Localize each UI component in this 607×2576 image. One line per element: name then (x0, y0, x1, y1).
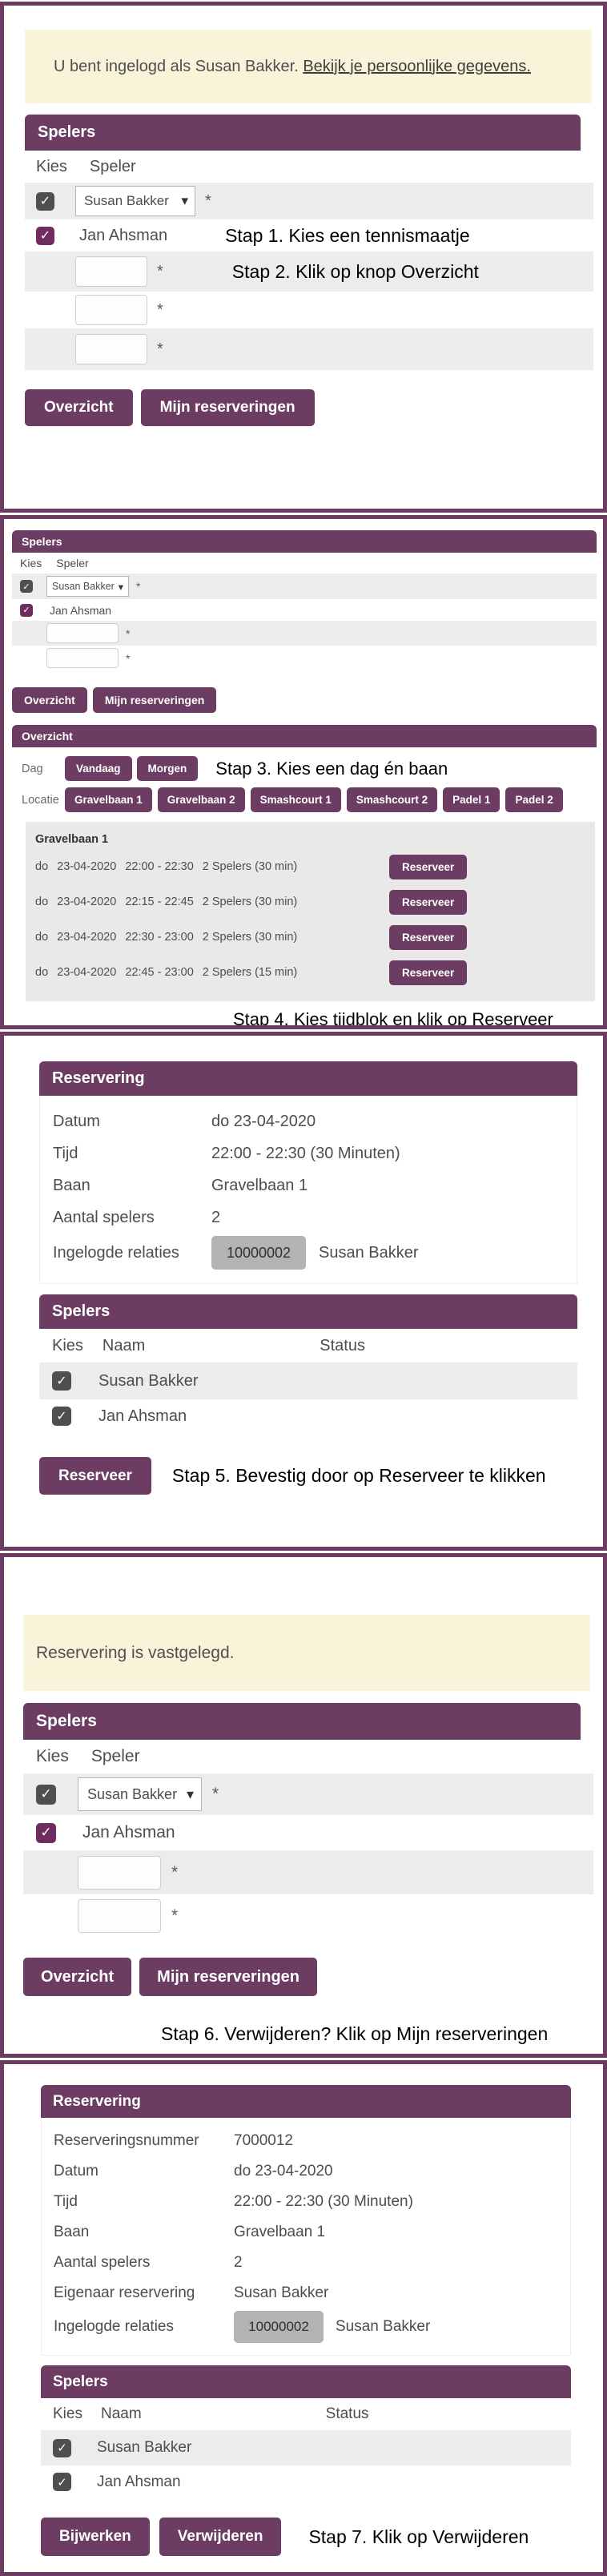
overzicht-button[interactable]: Overzicht (12, 687, 87, 713)
check-icon: ✓ (40, 227, 50, 244)
slot-date: 23-04-2020 (57, 966, 116, 979)
field-aantal-spelers: Aantal spelers 2 (53, 1201, 577, 1234)
court-button-smashcourt-1[interactable]: Smashcourt 1 (251, 787, 341, 812)
reservering-title: Reservering (52, 1069, 145, 1088)
check-icon: ✓ (40, 1825, 51, 1841)
required-asterisk: * (205, 192, 211, 211)
field-value: 2 (234, 2254, 243, 2272)
player-name: Susan Bakker (97, 2439, 191, 2457)
slot-date: 23-04-2020 (57, 896, 116, 908)
player-name: Jan Ahsman (97, 2473, 181, 2491)
field-value: 7000012 (234, 2132, 293, 2150)
required-asterisk: * (126, 652, 130, 665)
checkbox-jan[interactable]: ✓ (53, 2473, 71, 2491)
login-banner: U bent ingelogd als Susan Bakker. Bekijk… (25, 30, 592, 103)
player-input[interactable] (75, 256, 147, 287)
player-select[interactable]: Susan Bakker ▾ (75, 186, 195, 216)
field-tijd: Tijd 22:00 - 22:30 (30 Minuten) (54, 2187, 570, 2217)
field-value: 2 (211, 1209, 220, 1227)
panel-step-7: Reservering Reserveringsnummer 7000012 D… (0, 2060, 607, 2576)
field-label: Datum (53, 1113, 211, 1131)
reserveer-button[interactable]: Reserveer (39, 1457, 151, 1495)
slot-day: do (35, 931, 48, 944)
field-datum: Datum do 23-04-2020 (53, 1105, 577, 1137)
slot-day: do (35, 896, 48, 908)
court-button-padel-1[interactable]: Padel 1 (443, 787, 500, 812)
field-baan: Baan Gravelbaan 1 (53, 1169, 577, 1201)
timeslot-row: do 23-04-2020 22:30 - 23:00 2 Spelers (3… (35, 920, 585, 955)
col-speler: Speler (91, 1747, 140, 1766)
field-value: 22:00 - 22:30 (30 Minuten) (234, 2193, 413, 2211)
locatie-label: Locatie (12, 794, 65, 807)
spelers-title: Spelers (36, 1712, 97, 1731)
col-kies: Kies (52, 1337, 83, 1355)
player-select-value: Susan Bakker (84, 193, 169, 209)
empty-player-row: * (23, 1894, 593, 1937)
checkbox-susan[interactable]: ✓ (36, 1785, 56, 1805)
player-select[interactable]: Susan Bakker ▾ (78, 1777, 202, 1811)
field-label: Aantal spelers (54, 2254, 234, 2272)
spelers-column-header: Kies Naam Status (41, 2398, 571, 2430)
required-asterisk: * (157, 263, 163, 281)
field-label: Datum (54, 2163, 234, 2180)
caret-down-icon: ▾ (119, 581, 123, 593)
checkbox-jan[interactable]: ✓ (36, 227, 54, 245)
timeslot-text: do 23-04-2020 22:45 - 23:00 2 Spelers (1… (35, 966, 389, 979)
checkbox-susan[interactable]: ✓ (53, 2439, 71, 2457)
slot-date: 23-04-2020 (57, 931, 116, 944)
day-selector-row: Dag Vandaag Morgen Stap 3. Kies een dag … (12, 756, 597, 781)
required-asterisk: * (157, 340, 163, 359)
step-7-annotation: Stap 7. Klik op Verwijderen (308, 2526, 529, 2548)
relation-id-badge: 10000002 (211, 1236, 306, 1270)
empty-player-row: * (25, 328, 593, 370)
location-selector-row: Locatie Gravelbaan 1 Gravelbaan 2 Smashc… (12, 787, 597, 812)
check-icon: ✓ (40, 1786, 51, 1802)
court-button-smashcourt-2[interactable]: Smashcourt 2 (347, 787, 437, 812)
check-icon: ✓ (57, 2475, 67, 2489)
field-datum: Datum do 23-04-2020 (54, 2156, 570, 2187)
player-row-jan: ✓ Jan Ahsman Stap 1. Kies een tennismaat… (25, 219, 593, 252)
player-row-susan: ✓ Susan Bakker ▾ * (12, 574, 597, 599)
field-aantal-spelers: Aantal spelers 2 (54, 2248, 570, 2278)
reserveer-button[interactable]: Reserveer (389, 855, 467, 879)
vandaag-button[interactable]: Vandaag (65, 756, 132, 781)
player-name: Susan Bakker (98, 1372, 199, 1391)
required-asterisk: * (171, 1863, 178, 1882)
mijn-reserveringen-button[interactable]: Mijn reserveringen (139, 1958, 317, 1996)
check-icon: ✓ (22, 605, 30, 615)
mijn-reserveringen-button[interactable]: Mijn reserveringen (93, 687, 217, 713)
player-row-jan: ✓ Jan Ahsman (41, 2465, 571, 2498)
relation-name: Susan Bakker (336, 2318, 430, 2336)
player-select[interactable]: Susan Bakker ▾ (46, 576, 129, 597)
overzicht-header: Overzicht (12, 725, 597, 747)
player-input[interactable] (46, 648, 119, 668)
slot-info: 2 Spelers (30 min) (203, 896, 297, 908)
field-label: Baan (53, 1177, 211, 1195)
reserveer-button[interactable]: Reserveer (389, 890, 467, 915)
player-row-susan: ✓ Susan Bakker ▾ * (25, 183, 593, 219)
step-3-annotation: Stap 3. Kies een dag én baan (215, 759, 448, 779)
required-asterisk: * (171, 1906, 178, 1926)
field-label: Tijd (54, 2193, 234, 2211)
overzicht-title: Overzicht (22, 730, 73, 743)
player-select-value: Susan Bakker (52, 581, 115, 592)
timeslot-row: do 23-04-2020 22:45 - 23:00 2 Spelers (1… (35, 955, 585, 990)
panel-step-3-4: Spelers Kies Speler ✓ Susan Bakker ▾ * ✓… (0, 515, 607, 1029)
field-eigenaar: Eigenaar reservering Susan Bakker (54, 2278, 570, 2308)
player-row-susan: ✓ Susan Bakker (41, 2430, 571, 2465)
checkbox-jan[interactable]: ✓ (52, 1407, 71, 1426)
timeslot-text: do 23-04-2020 22:15 - 22:45 2 Spelers (3… (35, 896, 389, 908)
check-icon: ✓ (22, 582, 30, 592)
field-value: do 23-04-2020 (211, 1113, 316, 1131)
spelers-title: Spelers (22, 535, 62, 548)
spelers-header: Spelers (23, 1703, 581, 1740)
field-value: Susan Bakker (234, 2284, 328, 2302)
panel-step-6: Reservering is vastgelegd. Spelers Kies … (0, 1553, 607, 2058)
checkbox-susan[interactable]: ✓ (36, 192, 54, 211)
field-value: Gravelbaan 1 (234, 2224, 325, 2241)
spelers-title: Spelers (52, 1302, 110, 1321)
step-5-annotation: Stap 5. Bevestig door op Reserveer te kl… (172, 1465, 546, 1487)
col-kies: Kies (53, 2405, 82, 2423)
empty-player-row: * (12, 646, 597, 670)
overzicht-button[interactable]: Overzicht (23, 1958, 131, 1996)
overzicht-button[interactable]: Overzicht (25, 389, 133, 426)
field-tijd: Tijd 22:00 - 22:30 (30 Minuten) (53, 1137, 577, 1169)
empty-player-row: * Stap 2. Klik op knop Overzicht (25, 252, 593, 292)
player-name: Jan Ahsman (50, 604, 111, 617)
spelers-column-header: Kies Speler (25, 151, 593, 183)
checkbox-susan[interactable]: ✓ (52, 1371, 71, 1391)
empty-player-row: * (12, 621, 597, 646)
checkbox-susan[interactable]: ✓ (20, 580, 33, 593)
player-name: Jan Ahsman (82, 1823, 175, 1842)
required-asterisk: * (212, 1785, 219, 1804)
panel-step-5: Reservering Datum do 23-04-2020 Tijd 22:… (0, 1032, 607, 1551)
col-naam: Naam (103, 1337, 145, 1355)
relation-name: Susan Bakker (319, 1244, 419, 1262)
check-icon: ✓ (40, 193, 50, 209)
personal-details-link[interactable]: Bekijk je persoonlijke gegevens. (303, 58, 531, 76)
empty-player-row: * (23, 1850, 593, 1894)
reserveer-button[interactable]: Reserveer (389, 925, 467, 950)
field-label: Ingelogde relaties (53, 1244, 211, 1262)
col-naam: Naam (101, 2405, 142, 2423)
required-asterisk: * (157, 301, 163, 320)
dag-label: Dag (12, 763, 65, 775)
player-row-jan: ✓ Jan Ahsman (23, 1815, 593, 1850)
reservering-header: Reservering (39, 1061, 577, 1096)
required-asterisk: * (126, 627, 130, 640)
empty-player-row: * (25, 292, 593, 328)
reservering-title: Reservering (53, 2093, 141, 2111)
checkbox-jan[interactable]: ✓ (36, 1823, 56, 1843)
court-button-gravelbaan-2[interactable]: Gravelbaan 2 (158, 787, 245, 812)
field-value: Gravelbaan 1 (211, 1177, 308, 1195)
spelers-column-header: Kies Speler (12, 553, 597, 574)
timeslot-row: do 23-04-2020 22:15 - 22:45 2 Spelers (3… (35, 884, 585, 920)
confirmation-banner: Reservering is vastgelegd. (23, 1615, 590, 1691)
slot-info: 2 Spelers (15 min) (203, 966, 297, 979)
slot-day: do (35, 860, 48, 873)
reserveer-button[interactable]: Reserveer (389, 960, 467, 985)
step-2-annotation: Stap 2. Klik op knop Overzicht (232, 261, 479, 283)
field-label: Eigenaar reservering (54, 2284, 234, 2302)
col-kies: Kies (20, 557, 42, 570)
bijwerken-button[interactable]: Bijwerken (41, 2518, 150, 2556)
col-speler: Speler (56, 557, 88, 570)
spelers-column-header: Kies Naam Status (39, 1329, 577, 1362)
login-banner-text: U bent ingelogd als Susan Bakker. (54, 58, 299, 76)
panel-step-1-2: U bent ingelogd als Susan Bakker. Bekijk… (0, 2, 607, 513)
spelers-column-header: Kies Speler (23, 1740, 593, 1773)
col-kies: Kies (36, 1747, 69, 1766)
mijn-reserveringen-button[interactable]: Mijn reserveringen (141, 389, 315, 426)
required-asterisk: * (136, 580, 140, 593)
checkbox-jan[interactable]: ✓ (20, 604, 33, 617)
reservering-details: Datum do 23-04-2020 Tijd 22:00 - 22:30 (… (39, 1096, 577, 1284)
court-button-gravelbaan-1[interactable]: Gravelbaan 1 (65, 787, 152, 812)
court-button-padel-2[interactable]: Padel 2 (505, 787, 562, 812)
caret-down-icon: ▾ (181, 193, 188, 209)
slot-time: 22:45 - 23:00 (125, 966, 193, 979)
verwijderen-button[interactable]: Verwijderen (159, 2518, 282, 2556)
field-value: 22:00 - 22:30 (30 Minuten) (211, 1145, 400, 1163)
field-label: Aantal spelers (53, 1209, 211, 1227)
slot-info: 2 Spelers (30 min) (203, 931, 297, 944)
player-row-jan: ✓ Jan Ahsman (12, 599, 597, 621)
field-label: Baan (54, 2224, 234, 2241)
slot-time: 22:30 - 23:00 (125, 931, 193, 944)
step-6-annotation: Stap 6. Verwijderen? Klik op Mijn reserv… (161, 2023, 593, 2045)
slot-day: do (35, 966, 48, 979)
caret-down-icon: ▾ (187, 1786, 194, 1803)
field-baan: Baan Gravelbaan 1 (54, 2217, 570, 2248)
confirmation-text: Reservering is vastgelegd. (36, 1644, 234, 1663)
player-select-value: Susan Bakker (87, 1786, 177, 1803)
player-row-jan: ✓ Jan Ahsman (39, 1399, 577, 1433)
player-input[interactable] (75, 295, 147, 325)
player-name: Jan Ahsman (79, 227, 167, 245)
player-row-susan: ✓ Susan Bakker (39, 1362, 577, 1399)
slot-time: 22:15 - 22:45 (125, 896, 193, 908)
spelers-title: Spelers (53, 2373, 108, 2391)
spelers-header: Spelers (41, 2365, 571, 2398)
spelers-header: Spelers (12, 530, 597, 553)
field-ingelogde-relaties: Ingelogde relaties 10000002 Susan Bakker (54, 2308, 570, 2345)
col-status: Status (320, 1337, 365, 1355)
check-icon: ✓ (56, 1373, 66, 1389)
field-ingelogde-relaties: Ingelogde relaties 10000002 Susan Bakker (53, 1234, 577, 1272)
spelers-title: Spelers (38, 123, 95, 142)
slot-time: 22:00 - 22:30 (125, 860, 193, 873)
player-row-susan: ✓ Susan Bakker ▾ * (23, 1773, 593, 1815)
field-reserveringsnummer: Reserveringsnummer 7000012 (54, 2126, 570, 2156)
player-input[interactable] (78, 1856, 161, 1890)
relation-id-badge: 10000002 (234, 2311, 324, 2343)
player-name: Jan Ahsman (98, 1407, 187, 1426)
col-speler: Speler (90, 158, 136, 176)
timeslot-text: do 23-04-2020 22:30 - 23:00 2 Spelers (3… (35, 931, 389, 944)
timeslot-text: do 23-04-2020 22:00 - 22:30 2 Spelers (3… (35, 860, 389, 873)
spelers-header: Spelers (25, 115, 581, 151)
player-input[interactable] (78, 1899, 161, 1933)
spelers-header: Spelers (39, 1294, 577, 1329)
field-label: Reserveringsnummer (54, 2132, 234, 2150)
step-4-annotation: Stap 4. Kies tijdblok en klik op Reserve… (233, 1009, 597, 1029)
check-icon: ✓ (56, 1408, 66, 1424)
reservering-details: Reserveringsnummer 7000012 Datum do 23-0… (41, 2118, 571, 2356)
morgen-button[interactable]: Morgen (137, 756, 199, 781)
slot-info: 2 Spelers (30 min) (203, 860, 297, 873)
field-value: do 23-04-2020 (234, 2163, 333, 2180)
check-icon: ✓ (57, 2441, 67, 2455)
slot-date: 23-04-2020 (57, 860, 116, 873)
timeslot-block: Gravelbaan 1 do 23-04-2020 22:00 - 22:30… (26, 822, 595, 1001)
player-input[interactable] (46, 623, 119, 643)
col-status: Status (326, 2405, 369, 2423)
field-label: Ingelogde relaties (54, 2318, 234, 2336)
step-1-annotation: Stap 1. Kies een tennismaatje (225, 225, 470, 247)
reservering-header: Reservering (41, 2085, 571, 2118)
field-label: Tijd (53, 1145, 211, 1163)
player-input[interactable] (75, 334, 147, 364)
col-kies: Kies (36, 158, 67, 176)
timeslot-row: do 23-04-2020 22:00 - 22:30 2 Spelers (3… (35, 849, 585, 884)
court-title: Gravelbaan 1 (35, 830, 585, 849)
